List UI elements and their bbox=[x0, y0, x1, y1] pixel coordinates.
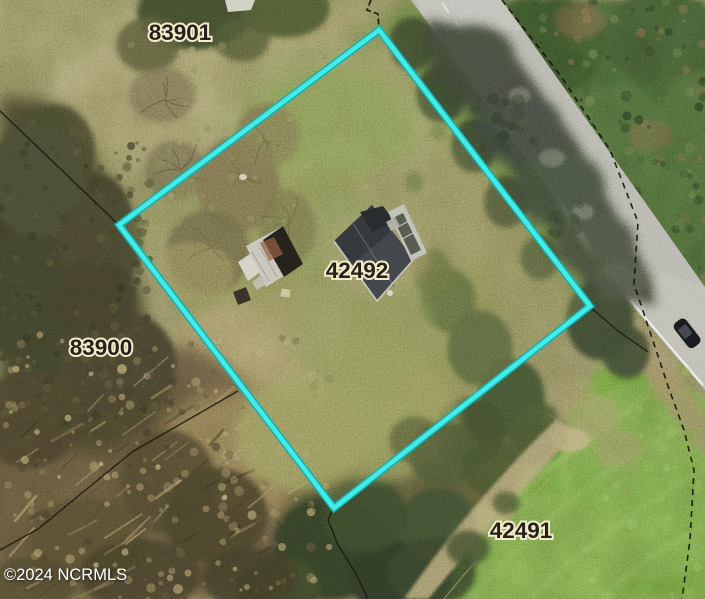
svg-text:83900: 83900 bbox=[70, 335, 133, 360]
svg-text:42491: 42491 bbox=[490, 518, 553, 543]
svg-text:42492: 42492 bbox=[326, 258, 389, 283]
svg-text:©2024 NCRMLS: ©2024 NCRMLS bbox=[4, 566, 127, 584]
svg-text:83901: 83901 bbox=[149, 20, 212, 45]
